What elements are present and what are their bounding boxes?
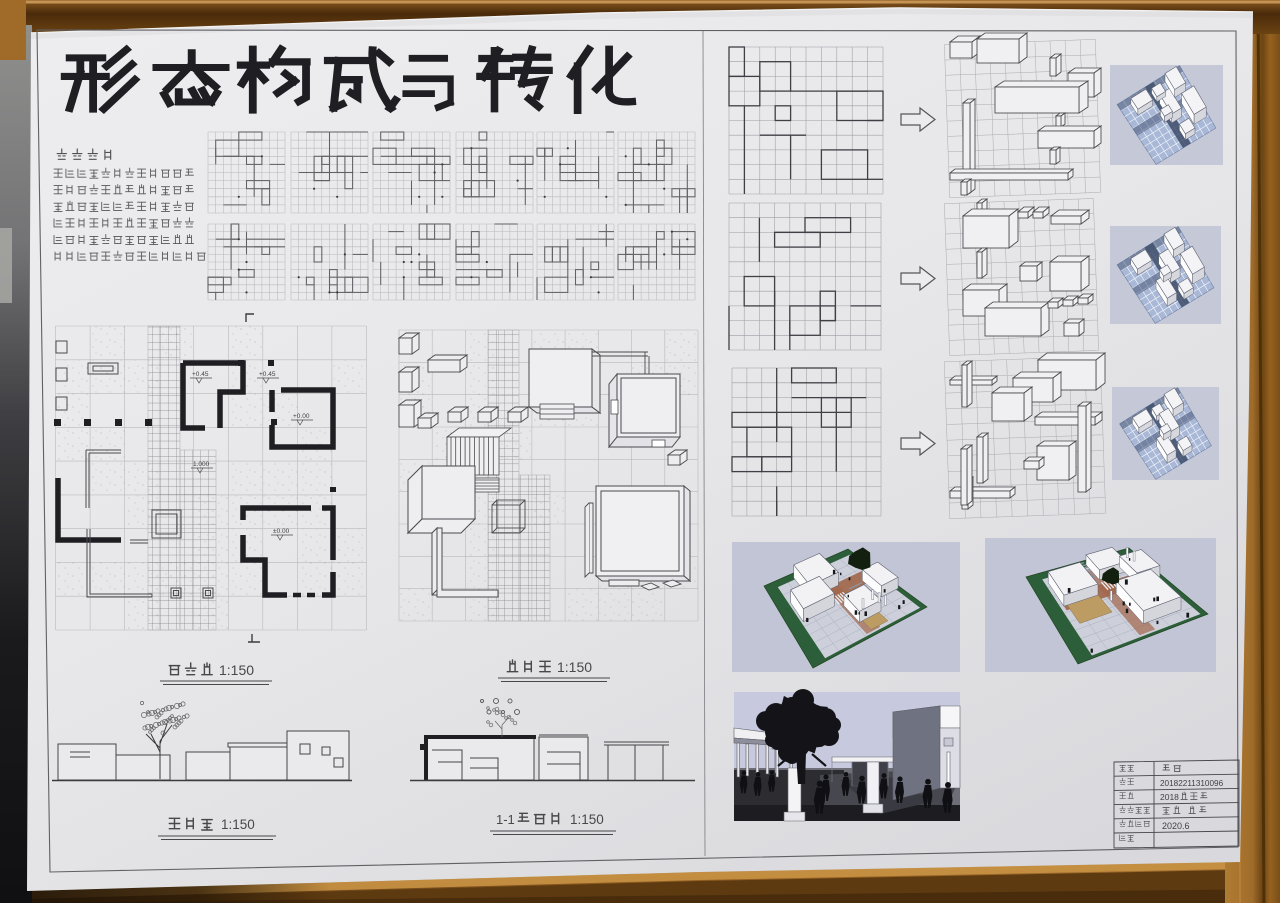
svg-text:1:150: 1:150 <box>221 817 255 832</box>
svg-text:1:150: 1:150 <box>570 812 604 827</box>
svg-text:2018: 2018 <box>1160 792 1179 802</box>
svg-text:1:150: 1:150 <box>219 662 254 678</box>
svg-text:1:150: 1:150 <box>557 659 592 675</box>
svg-text:20182211310096: 20182211310096 <box>1160 779 1224 788</box>
svg-text:+0.45: +0.45 <box>192 371 209 378</box>
svg-text:+0.45: +0.45 <box>259 371 276 378</box>
svg-text:+0.00: +0.00 <box>293 413 310 420</box>
svg-text:1-1: 1-1 <box>496 812 515 827</box>
svg-text:1.000: 1.000 <box>193 461 210 468</box>
svg-text:2020.6: 2020.6 <box>1162 821 1190 831</box>
svg-text:±0.00: ±0.00 <box>273 528 290 535</box>
